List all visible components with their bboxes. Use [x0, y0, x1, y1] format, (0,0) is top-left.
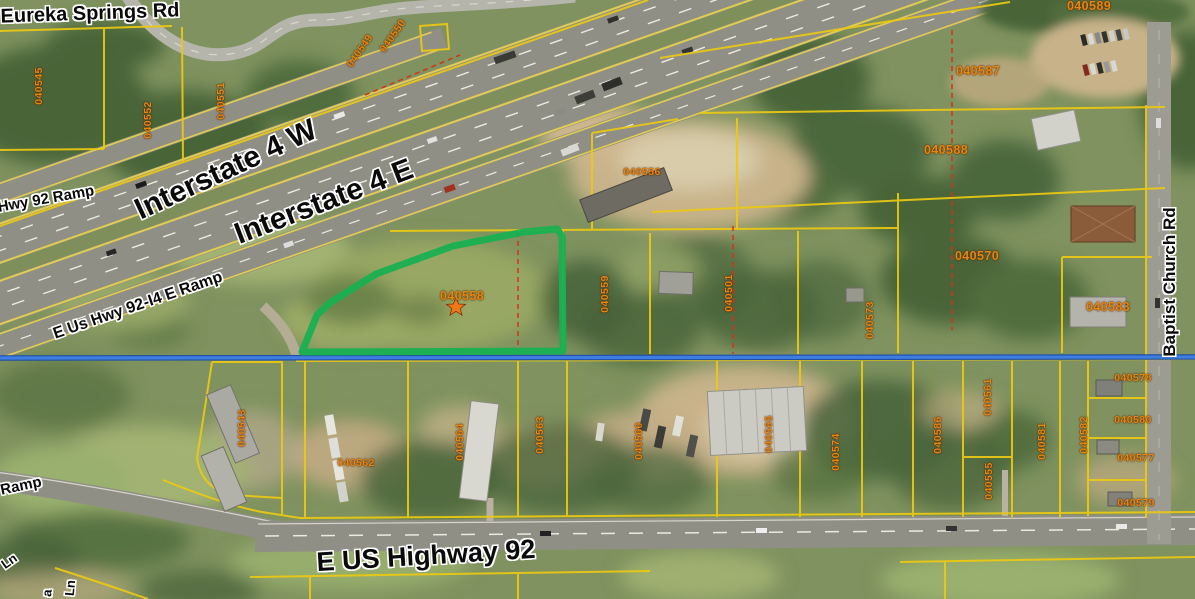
parcel-label-040587: 040587	[956, 64, 1000, 78]
parcel-label-040545: 040545	[33, 67, 45, 104]
parcel-label-040579: 040579	[1117, 497, 1154, 509]
parcel-label-040561: 040561	[982, 378, 994, 415]
parcel-label-040563: 040563	[534, 416, 546, 453]
parcel-label-040555: 040555	[983, 462, 995, 499]
parcel-label-040564: 040564	[454, 423, 466, 460]
road-label-baptist-church-rd: Baptist Church Rd	[1160, 207, 1180, 356]
parcel-label-040556: 040556	[623, 166, 660, 178]
parcel-label-040552: 040552	[142, 101, 154, 138]
parcel-label-040565: 040565	[763, 415, 775, 452]
parcel-label-040589: 040589	[1067, 0, 1111, 13]
parcel-label-040559: 040559	[599, 275, 611, 312]
parcel-label-040573: 040573	[864, 301, 876, 338]
parcel-label-040560: 040560	[633, 422, 645, 459]
section-line	[0, 357, 1195, 358]
parcel-label-040578: 040578	[1114, 372, 1151, 384]
parcel-label-040582: 040582	[1078, 416, 1090, 453]
parcel-label-040581: 040581	[1036, 422, 1048, 459]
parcel-label-040577: 040577	[1117, 452, 1154, 464]
parcel-label-040586: 040586	[932, 416, 944, 453]
parcel-label-040558-subject: 040558	[440, 289, 484, 303]
parcel-label-040501: 040501	[723, 274, 735, 311]
hip-roof-house	[1071, 206, 1135, 242]
parcel-label-040562: 040562	[337, 457, 374, 469]
parcel-label-040583: 040583	[1086, 300, 1130, 314]
warehouse	[707, 387, 806, 456]
parcel-label-040551: 040551	[215, 82, 227, 119]
parcel-label-040580: 040580	[1114, 414, 1151, 426]
parcel-label-040570: 040570	[955, 249, 999, 263]
road-label-ln-partial: a	[39, 589, 55, 598]
parcel-label-040574: 040574	[830, 433, 842, 470]
parcel-label-040588: 040588	[924, 143, 968, 157]
road-label-ln-2: Ln	[62, 579, 78, 596]
map-viewport[interactable]: Eureka Springs Rd Hwy 92 Ramp Interstate…	[0, 0, 1195, 599]
parcel-label-040543: 040543	[236, 409, 248, 446]
